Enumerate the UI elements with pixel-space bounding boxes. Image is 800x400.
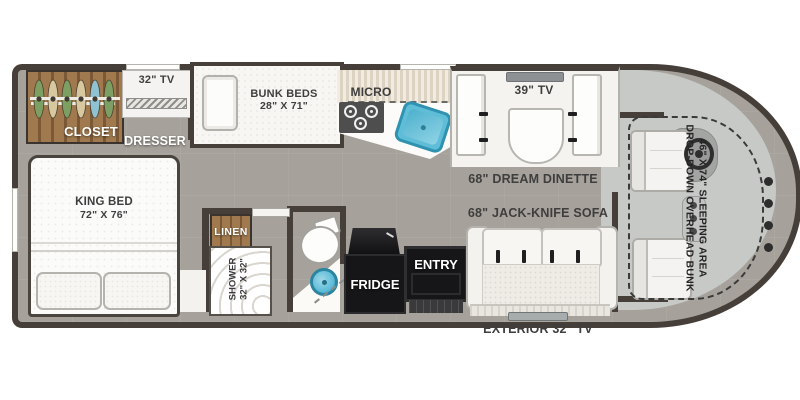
shower-ledge (252, 208, 290, 217)
closet-label: CLOSET (64, 125, 118, 140)
dinette-table (508, 108, 564, 164)
overhead-bunk-name: DROP-DOWN OVERHEAD BUNK (683, 124, 696, 291)
bedroom-tv-icon (126, 98, 187, 109)
dinette-label: 68" DREAM DINETTE (448, 172, 618, 186)
seatbelt-marker (479, 112, 488, 116)
bunk-beds-size: 28" X 71" (238, 101, 330, 113)
drop-down-bunk-label: 46" X 74" SLEEPING AREA DROP-DOWN OVERHE… (628, 116, 764, 300)
stove-icon (339, 102, 384, 133)
seatbelt-marker (550, 250, 554, 263)
seatbelt-marker (522, 250, 526, 263)
pillow (36, 272, 102, 310)
seatbelt-marker (576, 250, 580, 263)
seatbelt-marker (568, 138, 577, 142)
sofa-seat (482, 264, 600, 308)
wall-bath-left (287, 206, 293, 312)
fridge: FRIDGE (344, 254, 406, 314)
dresser-label: DRESSER (118, 134, 192, 148)
shower-label-box: SHOWER 32" X 32" (209, 246, 268, 312)
seatbelt-marker (496, 250, 500, 263)
living-tv-icon (506, 72, 564, 82)
step-light-icon (764, 221, 773, 230)
jack-knife-sofa (466, 226, 614, 312)
entry-step (409, 300, 463, 313)
king-bed-name: KING BED (31, 196, 177, 209)
bedroom-tv-label: 32" TV (123, 74, 190, 86)
entry-label: ENTRY (414, 257, 458, 272)
overhead-bunk-size: 46" X 74" SLEEPING AREA (696, 124, 709, 291)
window-bedroom-left (12, 188, 18, 252)
step-light-icon (764, 243, 773, 252)
step-light-icon (764, 199, 773, 208)
sofa-label: 68" JACK-KNIFE SOFA (462, 206, 614, 220)
seatbelt-marker (479, 138, 488, 142)
king-bed: KING BED 72" X 76" (28, 155, 180, 317)
shower-name: SHOWER (228, 258, 239, 301)
pillow (103, 272, 171, 310)
closet: CLOSET (26, 70, 124, 144)
linen-label: LINEN (214, 226, 248, 238)
exterior-tv-icon (508, 312, 568, 321)
clothes-hangers-icon (30, 76, 120, 122)
burner-icon (354, 117, 367, 130)
step-light-icon (764, 177, 773, 186)
shower-size: 32" X 32" (239, 258, 250, 301)
fridge-top (348, 228, 400, 255)
sofa-back-cushion (482, 228, 543, 268)
microwave-label: MICRO (344, 86, 398, 99)
living-tv-label: 39" TV (500, 84, 568, 97)
bunk-beds: BUNK BEDS 28" X 71" (190, 62, 344, 148)
wall-bath-top (287, 206, 345, 212)
rv-floorplan: CLOSET 32" TV DRESSER KING BED 72" X 76"… (0, 0, 800, 400)
exterior-tv-label: EXTERIOR 32" TV (468, 322, 608, 336)
fridge-label: FRIDGE (350, 277, 399, 292)
bed-fold-line (31, 242, 177, 252)
bathroom-sink (310, 268, 338, 296)
burner-icon (365, 105, 378, 118)
entry-door: ENTRY (404, 246, 468, 302)
linen-cabinet: LINEN (210, 214, 252, 250)
bunk-beds-name: BUNK BEDS (238, 88, 330, 100)
burner-icon (344, 105, 357, 118)
entry-door-panel (411, 273, 461, 295)
bunk-pillow (202, 75, 238, 131)
seatbelt-marker (568, 112, 577, 116)
king-bed-size: 72" X 76" (31, 210, 177, 222)
dresser-tv-cabinet: 32" TV (122, 70, 191, 118)
